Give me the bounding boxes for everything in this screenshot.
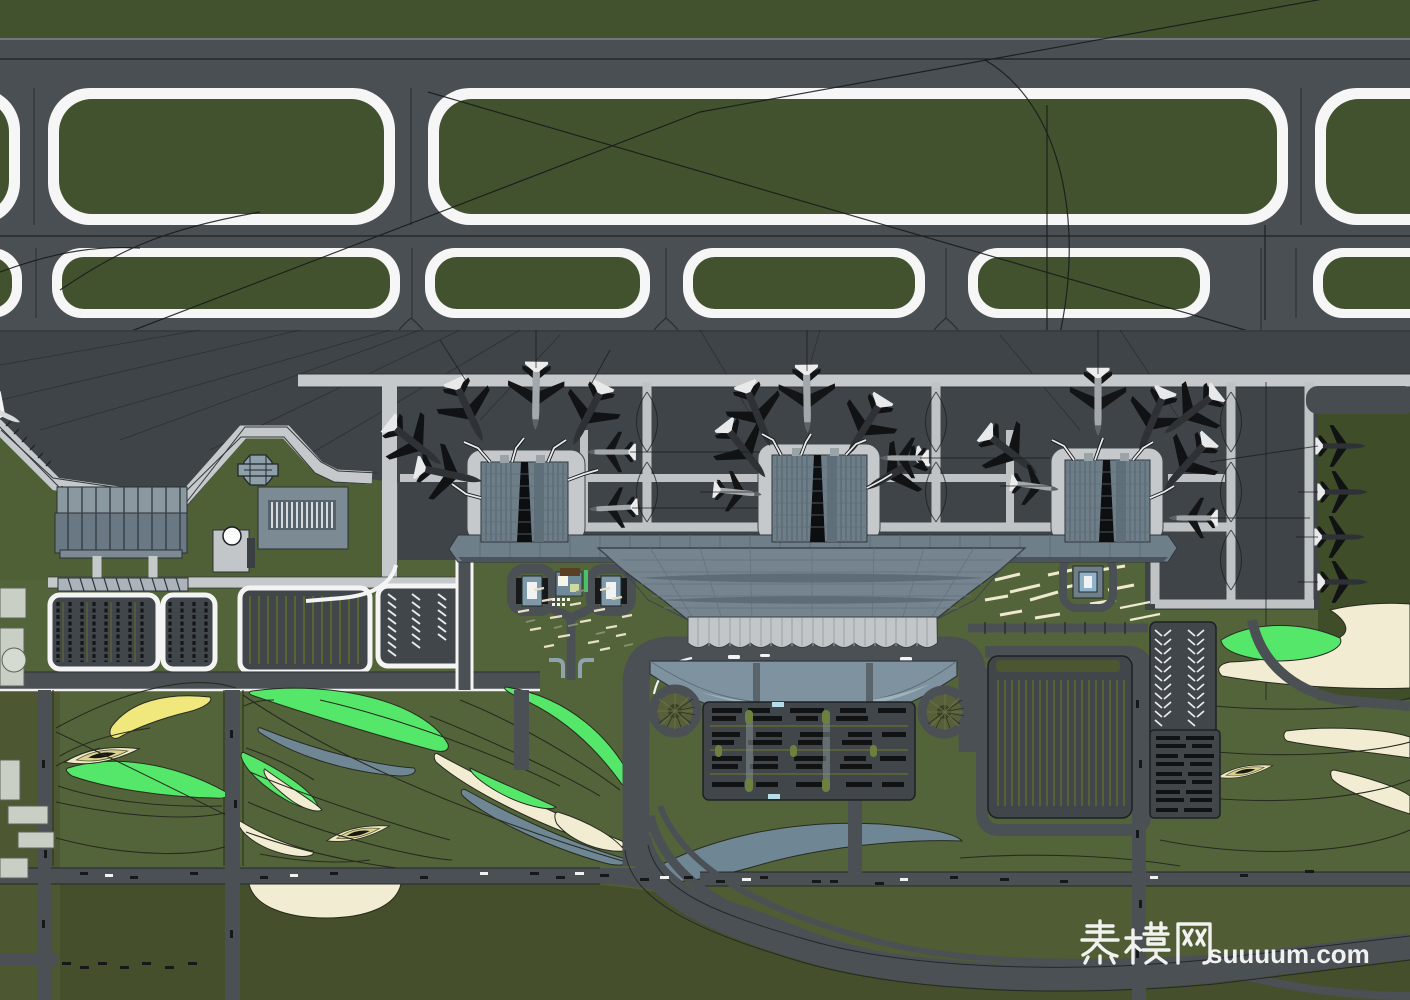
svg-text:suuuum.com: suuuum.com xyxy=(1208,939,1370,969)
